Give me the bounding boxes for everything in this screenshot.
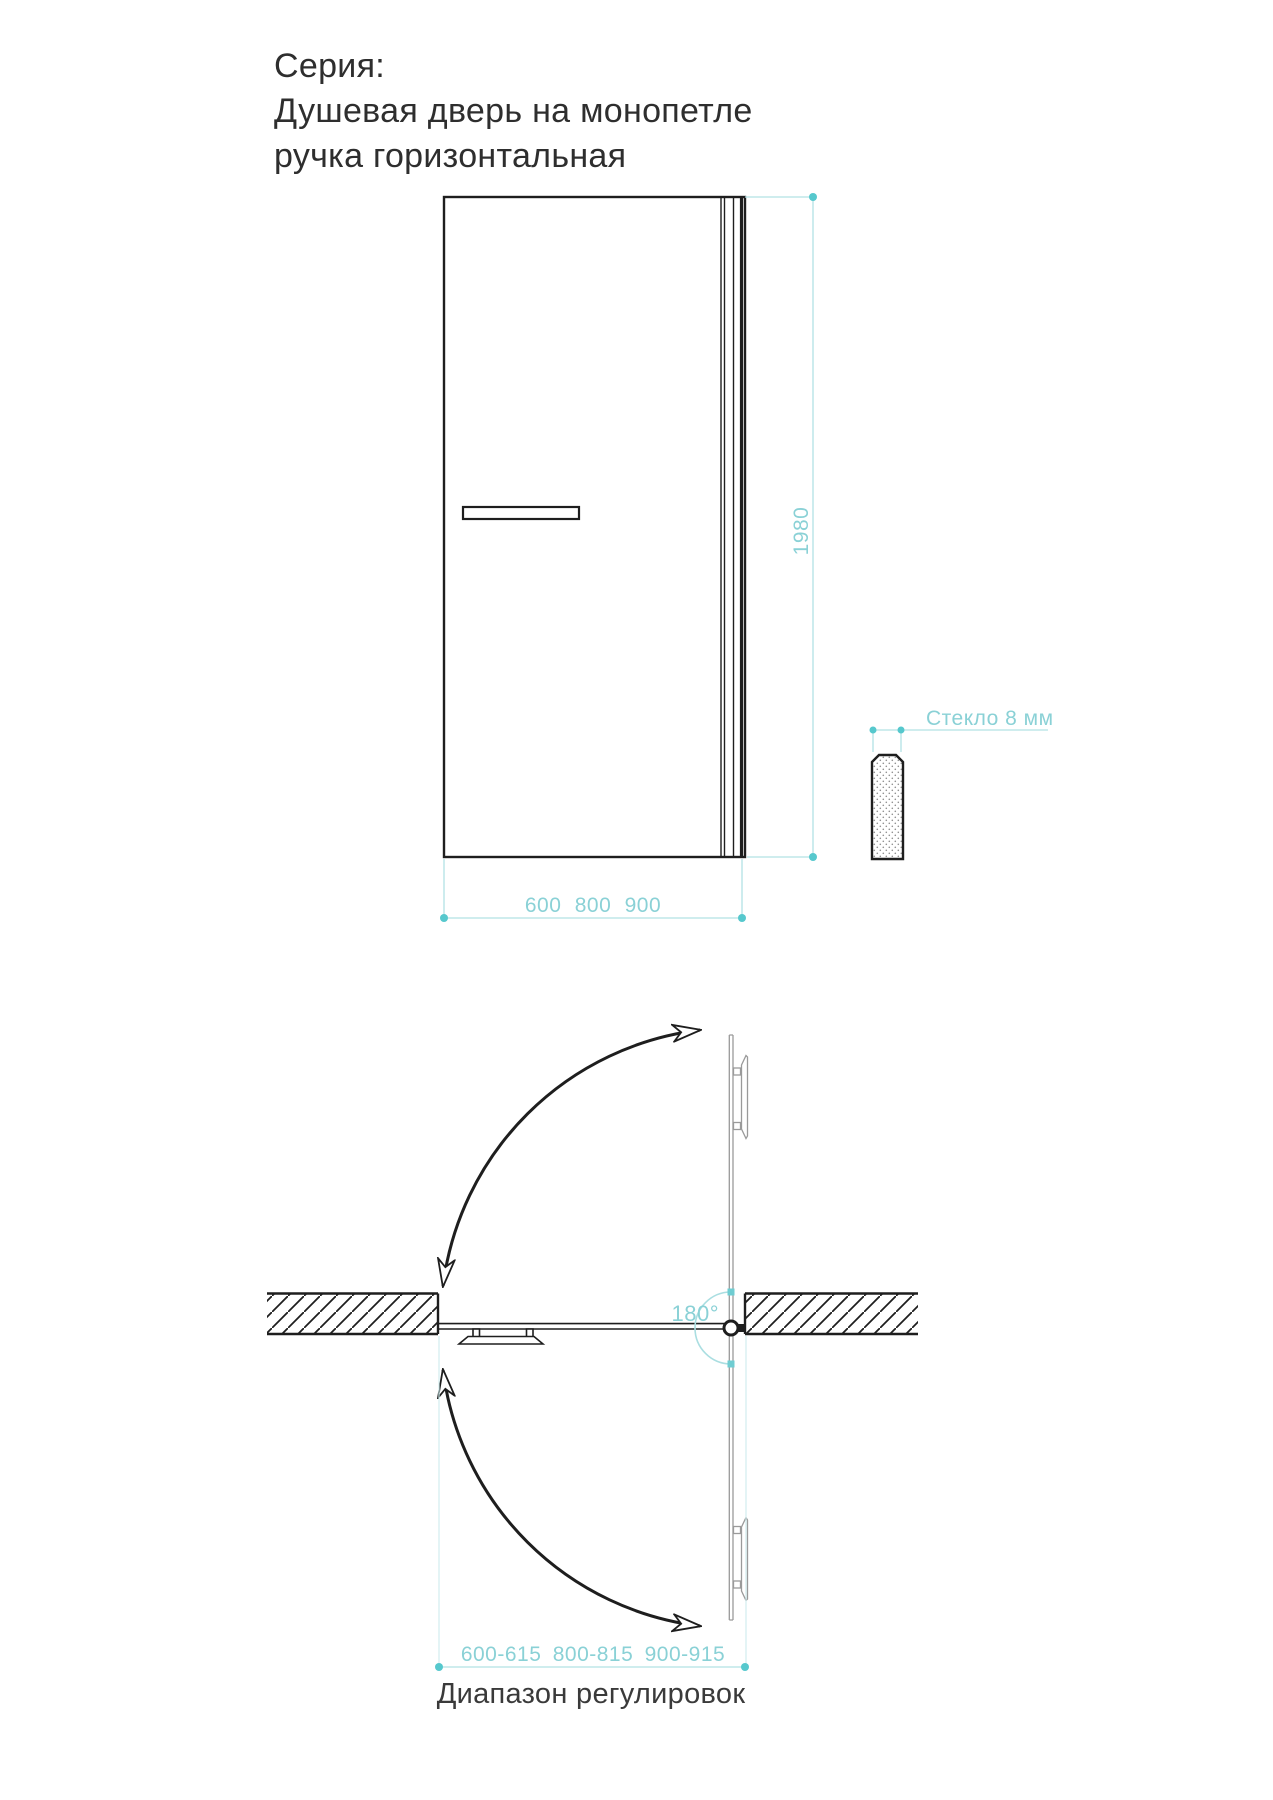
plan-caption: Диапазон регулировок (421, 1678, 761, 1711)
adjustment-dimension (435, 1336, 749, 1671)
title-block: Серия: Душевая дверь на монопетле ручка … (274, 44, 753, 179)
door-glass-panel (444, 197, 745, 857)
swing-arc-upper (443, 1030, 700, 1286)
glass-section-profile (872, 755, 903, 859)
handle-bar-plan (459, 1337, 543, 1345)
mono-hinge-pivot (724, 1321, 738, 1335)
product-name-line2: ручка горизонтальная (274, 134, 753, 179)
handle-bracket-top (734, 1056, 748, 1139)
front-view (440, 193, 817, 922)
adjustment-ranges-label: 600-615 800-815 900-915 (442, 1643, 744, 1667)
wall-right (745, 1294, 918, 1335)
handle-bracket-bottom (734, 1518, 748, 1601)
swing-arc-lower (443, 1370, 700, 1626)
product-name-line1: Душевая дверь на монопетле (274, 89, 753, 134)
height-dimension-label: 1980 (790, 486, 814, 576)
horizontal-handle-front (463, 507, 579, 519)
glass-cross-section (870, 727, 1049, 860)
series-label: Серия: (274, 44, 753, 89)
shower-door-spec-sheet: Серия: Душевая дверь на монопетле ручка … (0, 0, 1273, 1800)
swing-angle-label: 180° (655, 1301, 719, 1327)
glass-thickness-label: Стекло 8 мм (926, 707, 1054, 731)
wall-left (267, 1294, 438, 1335)
width-options-label: 600 800 900 (443, 894, 743, 918)
plan-view (267, 1030, 918, 1671)
